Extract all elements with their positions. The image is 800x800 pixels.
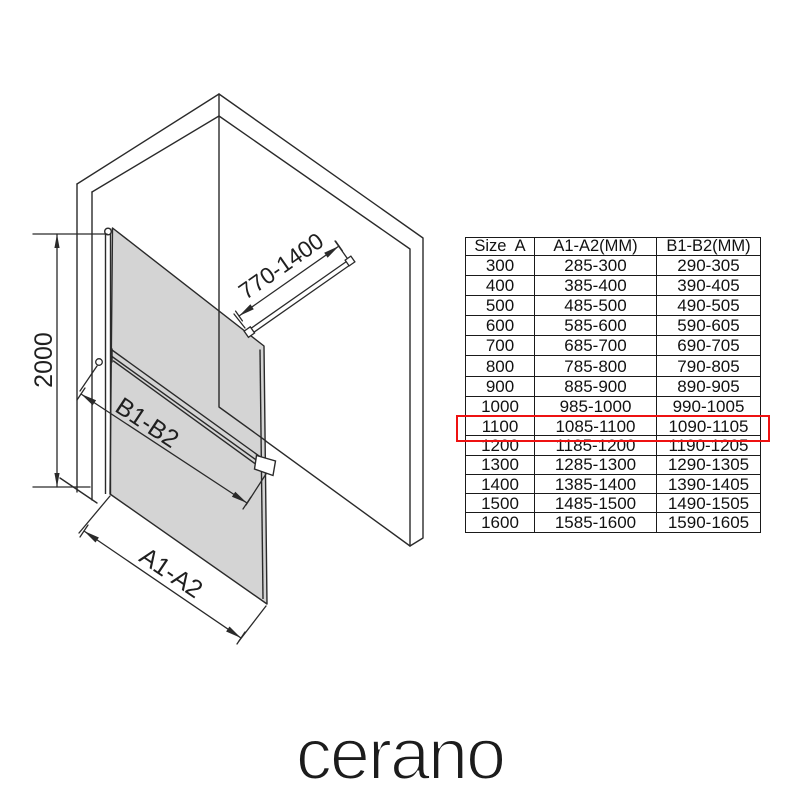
table-cell: 1385-1400 bbox=[535, 474, 657, 493]
height-dimension-label: 2000 bbox=[30, 332, 58, 388]
table-cell: 1500 bbox=[466, 494, 535, 513]
table-row: 600585-600590-605 bbox=[466, 316, 761, 336]
table-cell: 1285-1300 bbox=[535, 455, 657, 474]
table-cell: 1490-1505 bbox=[657, 494, 761, 513]
table-cell: 300 bbox=[466, 255, 535, 275]
arrowhead bbox=[239, 304, 254, 316]
table-cell: 590-605 bbox=[657, 316, 761, 336]
table-cell: 385-400 bbox=[535, 275, 657, 295]
table-cell: 885-900 bbox=[535, 376, 657, 396]
table-cell: 1190-1205 bbox=[657, 436, 761, 455]
table-cell: 685-700 bbox=[535, 336, 657, 356]
table-row: 800785-800790-805 bbox=[466, 356, 761, 376]
table-row: 1000985-1000990-1005 bbox=[466, 396, 761, 416]
table-cell: 1600 bbox=[466, 513, 535, 532]
table-row: 500485-500490-505 bbox=[466, 295, 761, 315]
table-cell: 990-1005 bbox=[657, 396, 761, 416]
table-cell: 700 bbox=[466, 336, 535, 356]
table-row: 15001485-15001490-1505 bbox=[466, 494, 761, 513]
table-cell: 285-300 bbox=[535, 255, 657, 275]
table-cell: 890-905 bbox=[657, 376, 761, 396]
table-cell: 485-500 bbox=[535, 295, 657, 315]
table-row: 12001185-12001190-1205 bbox=[466, 436, 761, 455]
support-bar-range-label: 770-1400 bbox=[234, 227, 329, 304]
table-cell: 785-800 bbox=[535, 356, 657, 376]
table-cell: 1185-1200 bbox=[535, 436, 657, 455]
table-cell: 1200 bbox=[466, 436, 535, 455]
table-cell: 390-405 bbox=[657, 275, 761, 295]
table-cell: 500 bbox=[466, 295, 535, 315]
table-cell: 1485-1500 bbox=[535, 494, 657, 513]
arrowhead bbox=[81, 394, 96, 405]
size-table: Size A A1-A2(MM) B1-B2(MM) 300285-300290… bbox=[465, 237, 761, 533]
dimension-770-1400: 770-1400 bbox=[234, 227, 355, 337]
table-cell: 1290-1305 bbox=[657, 455, 761, 474]
table-header-row: Size A A1-A2(MM) B1-B2(MM) bbox=[466, 238, 761, 256]
table-row: 13001285-13001290-1305 bbox=[466, 455, 761, 474]
table-cell: 1390-1405 bbox=[657, 474, 761, 493]
table-cell: 800 bbox=[466, 356, 535, 376]
table-cell: 1000 bbox=[466, 396, 535, 416]
column-header-a1-a2: A1-A2(MM) bbox=[535, 238, 657, 256]
table-cell: 1300 bbox=[466, 455, 535, 474]
page: 770-1400 2000 B1-B2 bbox=[0, 0, 800, 800]
table-row: 16001585-16001590-1605 bbox=[466, 513, 761, 532]
table-row: 900885-900890-905 bbox=[466, 376, 761, 396]
brand-logo: cerano bbox=[296, 714, 504, 796]
table-cell: 790-805 bbox=[657, 356, 761, 376]
table-row: 14001385-14001390-1405 bbox=[466, 474, 761, 493]
arrowhead bbox=[84, 531, 99, 543]
table-cell: 1400 bbox=[466, 474, 535, 493]
table-cell: 585-600 bbox=[535, 316, 657, 336]
table-row: 400385-400390-405 bbox=[466, 275, 761, 295]
table-cell: 290-305 bbox=[657, 255, 761, 275]
table-cell: 1090-1105 bbox=[657, 417, 761, 436]
column-header-size: Size A bbox=[466, 238, 535, 256]
table-cell: 1585-1600 bbox=[535, 513, 657, 532]
table-cell: 1100 bbox=[466, 417, 535, 436]
table-cell: 690-705 bbox=[657, 336, 761, 356]
table-cell: 900 bbox=[466, 376, 535, 396]
table-row: 11001085-11001090-1105 bbox=[466, 417, 761, 436]
reference-point bbox=[96, 359, 103, 366]
table-row: 300285-300290-305 bbox=[466, 255, 761, 275]
table-cell: 600 bbox=[466, 316, 535, 336]
arrowhead bbox=[54, 234, 59, 248]
arrowhead bbox=[226, 627, 241, 639]
table-cell: 1085-1100 bbox=[535, 417, 657, 436]
column-header-b1-b2: B1-B2(MM) bbox=[657, 238, 761, 256]
extension-line bbox=[80, 366, 97, 391]
table-row: 700685-700690-705 bbox=[466, 336, 761, 356]
arrowhead bbox=[54, 473, 59, 487]
table-cell: 490-505 bbox=[657, 295, 761, 315]
table-cell: 400 bbox=[466, 275, 535, 295]
table-cell: 1590-1605 bbox=[657, 513, 761, 532]
size-table-body: 300285-300290-305400385-400390-405500485… bbox=[466, 255, 761, 532]
table-cell: 985-1000 bbox=[535, 396, 657, 416]
